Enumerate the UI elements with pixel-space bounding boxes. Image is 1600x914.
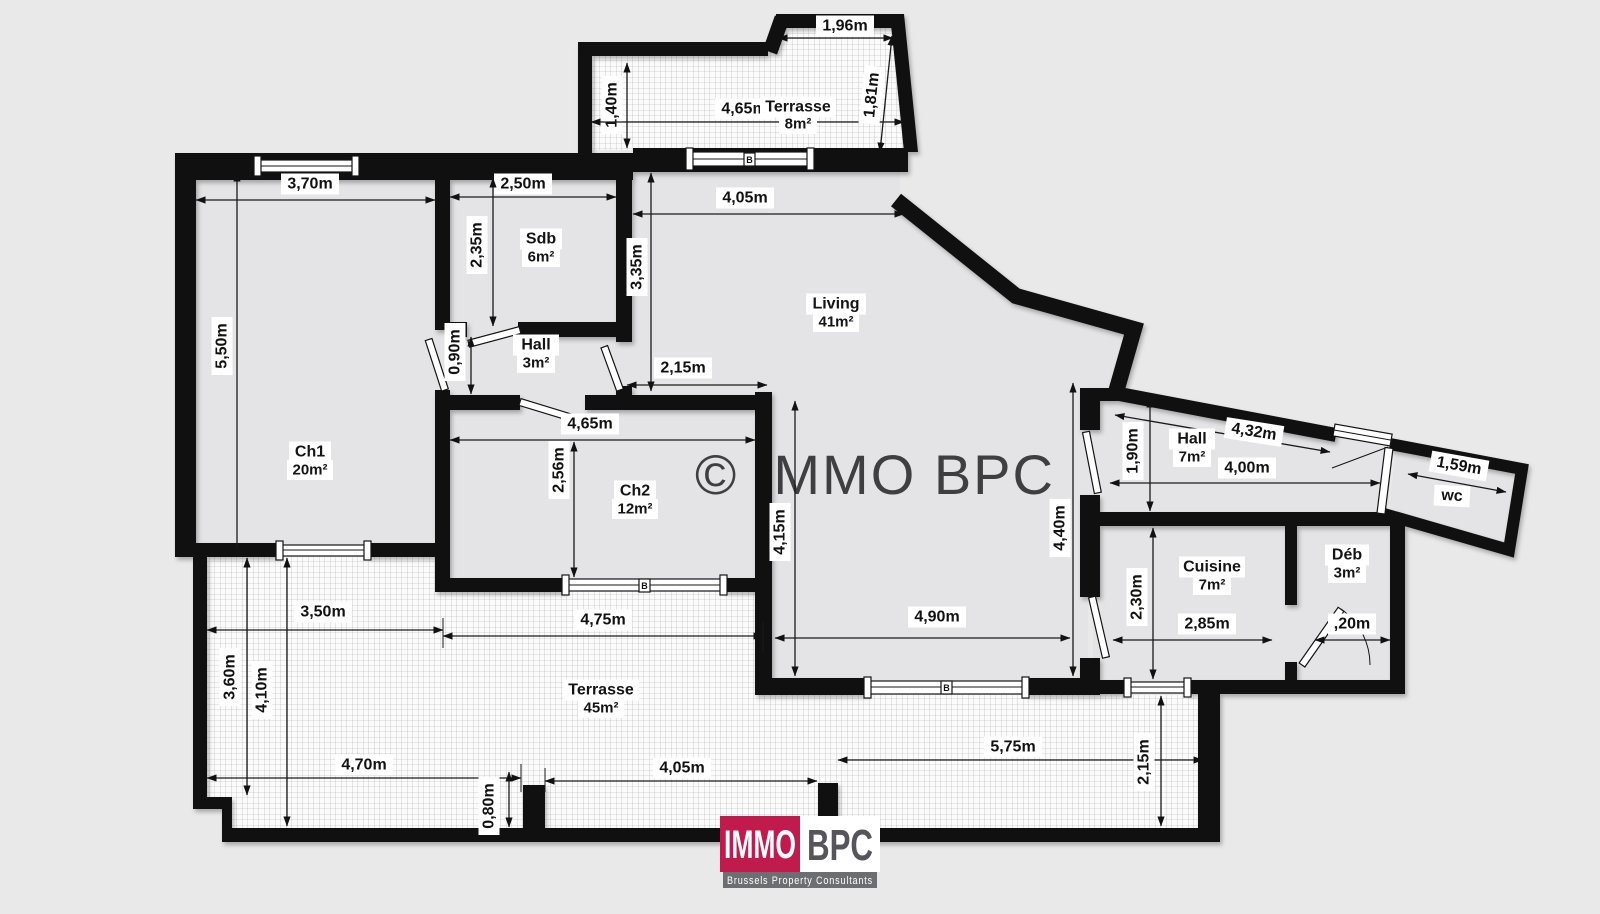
svg-text:3m²: 3m² xyxy=(523,355,550,372)
floorplan-svg: © IMMO BPC xyxy=(0,0,1600,914)
svg-text:7m²: 7m² xyxy=(1179,449,1206,466)
svg-text:1,96m: 1,96m xyxy=(822,18,867,35)
floorplan-page: © IMMO BPC xyxy=(0,0,1600,914)
svg-text:4,75m: 4,75m xyxy=(580,612,625,629)
svg-text:Déb: Déb xyxy=(1332,547,1362,564)
svg-text:4,70m: 4,70m xyxy=(341,757,386,774)
room-label-ch1: Ch1 20m² xyxy=(287,442,333,481)
svg-text:7m²: 7m² xyxy=(1199,577,1226,594)
room-label-wc: wc xyxy=(1433,485,1470,508)
logo-tagline: Brussels Property Consultants xyxy=(727,875,873,887)
room-floor-cuisine xyxy=(1093,518,1293,688)
svg-text:4,65m: 4,65m xyxy=(567,416,612,433)
svg-text:3,35m: 3,35m xyxy=(629,244,646,289)
svg-text:Sdb: Sdb xyxy=(526,231,556,248)
svg-text:5,75m: 5,75m xyxy=(990,739,1035,756)
svg-text:20m²: 20m² xyxy=(292,462,327,479)
svg-text:2,15m: 2,15m xyxy=(1136,739,1153,784)
svg-text:5,50m: 5,50m xyxy=(214,323,231,368)
svg-text:4,10m: 4,10m xyxy=(254,667,271,712)
svg-text:2,50m: 2,50m xyxy=(500,176,545,193)
room-label-hall-entry: Hall 3m² xyxy=(513,335,559,374)
svg-text:3,70m: 3,70m xyxy=(287,176,332,193)
logo-bpc-text: BPC xyxy=(807,821,873,870)
svg-text:4,05m: 4,05m xyxy=(722,190,767,207)
svg-text:4,40m: 4,40m xyxy=(1052,505,1069,550)
svg-text:45m²: 45m² xyxy=(583,700,618,717)
svg-text:Terrasse: Terrasse xyxy=(765,99,831,116)
svg-text:2,56m: 2,56m xyxy=(551,447,568,492)
svg-text:2,85m: 2,85m xyxy=(1184,616,1229,633)
svg-text:Hall: Hall xyxy=(521,337,550,354)
svg-text:Ch1: Ch1 xyxy=(295,444,325,461)
svg-text:3m²: 3m² xyxy=(1334,565,1361,582)
svg-text:3,50m: 3,50m xyxy=(300,604,345,621)
room-label-sdb: Sdb 6m² xyxy=(520,229,562,268)
svg-text:wc: wc xyxy=(1440,487,1463,505)
svg-text:B: B xyxy=(943,683,950,693)
room-label-living: Living 41m² xyxy=(806,294,866,333)
svg-text:4,15m: 4,15m xyxy=(772,509,789,554)
logo-immo-bpc: IMMO BPC Brussels Property Consultants xyxy=(720,816,880,888)
svg-text:Terrasse: Terrasse xyxy=(568,682,634,699)
svg-text:1,90m: 1,90m xyxy=(1125,428,1142,473)
svg-text:2,30m: 2,30m xyxy=(1129,574,1146,619)
svg-text:4,05m: 4,05m xyxy=(659,760,704,777)
svg-text:2,15m: 2,15m xyxy=(660,360,705,377)
svg-text:4,90m: 4,90m xyxy=(914,609,959,626)
svg-text:,20m: ,20m xyxy=(1334,616,1370,633)
svg-text:3,60m: 3,60m xyxy=(222,654,239,699)
svg-text:B: B xyxy=(641,581,648,591)
room-label-deb: Déb 3m² xyxy=(1325,545,1369,584)
svg-text:6m²: 6m² xyxy=(528,249,555,266)
svg-text:Cuisine: Cuisine xyxy=(1183,559,1241,576)
svg-text:B: B xyxy=(746,155,753,165)
room-label-hall-night: Hall 7m² xyxy=(1169,429,1215,468)
svg-text:Living: Living xyxy=(812,296,859,313)
svg-text:Hall: Hall xyxy=(1177,431,1206,448)
svg-text:2,35m: 2,35m xyxy=(469,222,486,267)
svg-text:0,90m: 0,90m xyxy=(447,329,464,374)
svg-text:0,80m: 0,80m xyxy=(481,783,498,828)
svg-text:12m²: 12m² xyxy=(617,501,652,518)
svg-text:41m²: 41m² xyxy=(818,314,853,331)
svg-text:4,00m: 4,00m xyxy=(1224,460,1269,477)
svg-text:Ch2: Ch2 xyxy=(620,483,650,500)
watermark: © IMMO BPC xyxy=(695,443,1055,506)
logo-immo-text: IMMO xyxy=(724,823,796,867)
room-label-ch2: Ch2 12m² xyxy=(612,481,658,520)
svg-text:8m²: 8m² xyxy=(785,116,812,133)
svg-text:4,65m: 4,65m xyxy=(721,101,766,118)
svg-text:1,40m: 1,40m xyxy=(604,82,621,127)
